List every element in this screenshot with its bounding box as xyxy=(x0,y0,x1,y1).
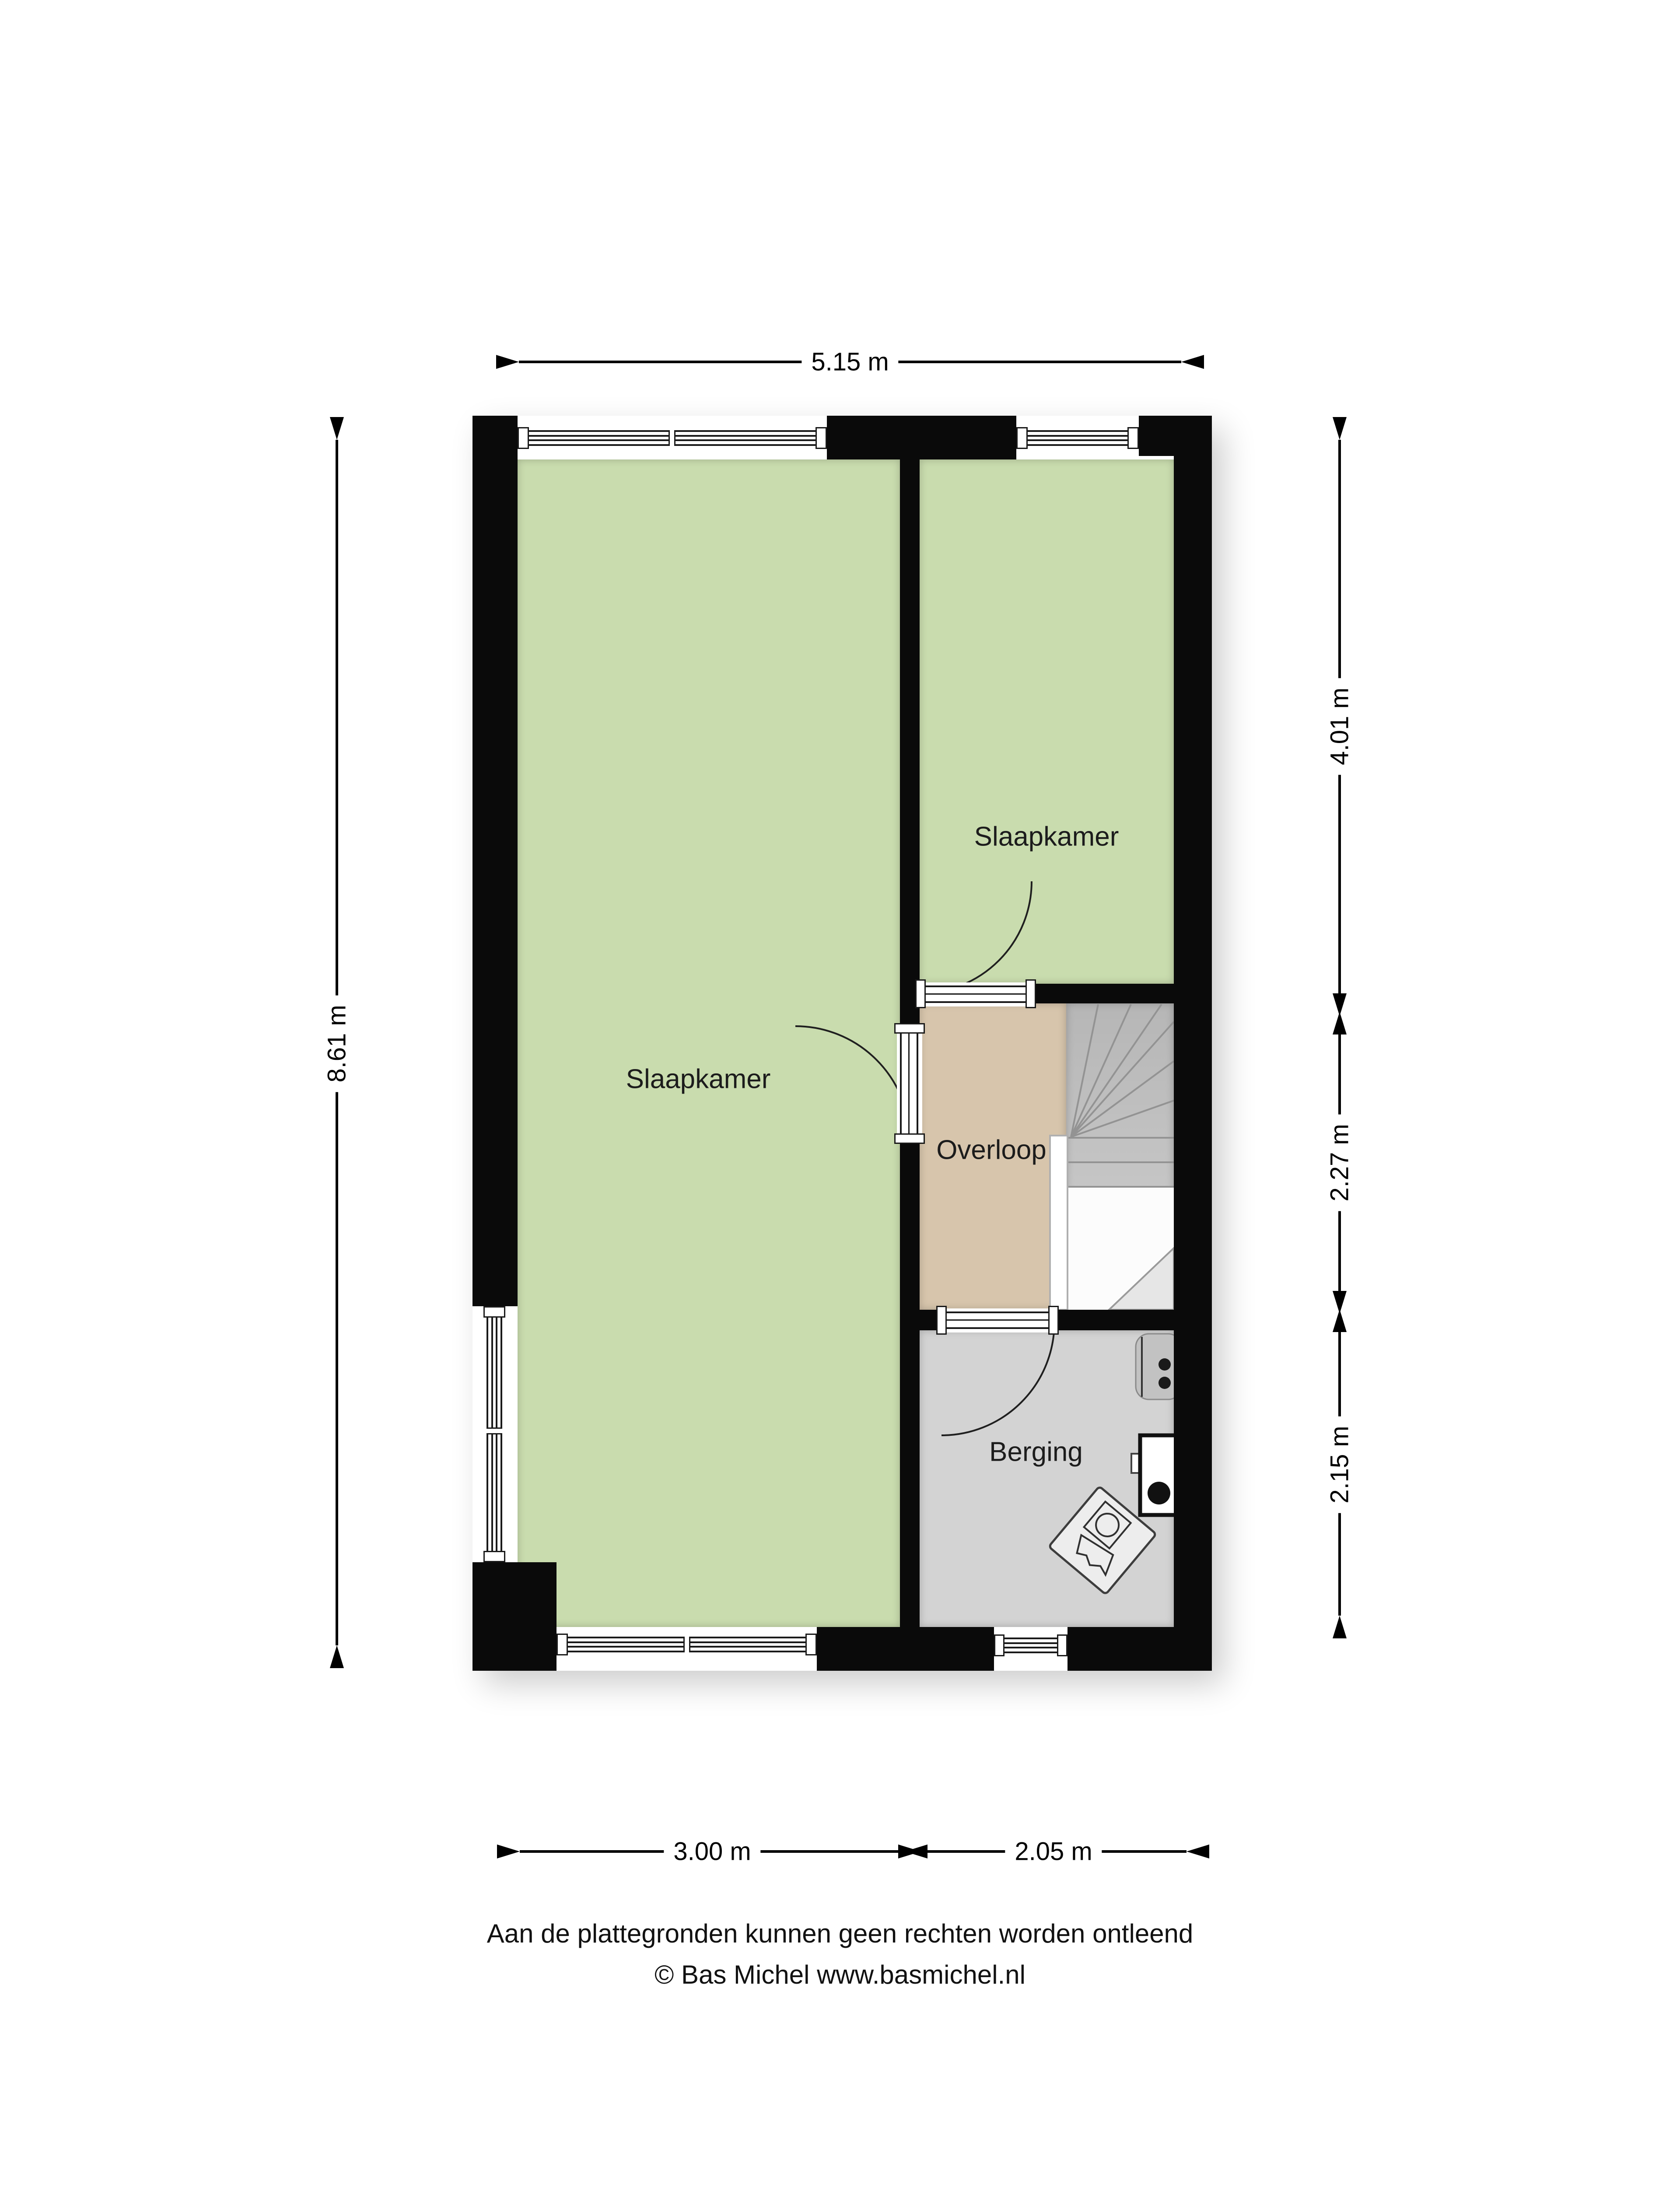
window-frame-cap xyxy=(518,427,529,449)
sink-icon xyxy=(1131,1435,1178,1515)
footer-credit: © Bas Michel www.basmichel.nl xyxy=(0,1954,1680,1995)
wall-segment xyxy=(1054,1310,1174,1330)
dimension-label-right-3: 2.15 m xyxy=(1325,1416,1354,1513)
window-frame-cap xyxy=(805,1634,817,1655)
wall-segment xyxy=(1032,984,1174,1003)
dimension-label-bottom-1: 3.00 m xyxy=(664,1837,760,1866)
wall-segment xyxy=(1067,1627,1212,1671)
wall-segment xyxy=(827,416,1016,459)
window-frame-cap xyxy=(1016,427,1028,449)
wall-segment xyxy=(900,459,920,1026)
door-frame-cap xyxy=(894,1133,925,1144)
window-mullion xyxy=(683,1637,690,1652)
door-panel xyxy=(900,1030,918,1137)
door-panel xyxy=(943,1311,1051,1329)
floor-plan-page: Slaapkamer Slaapkamer Overloop Berging 5… xyxy=(0,0,1680,2188)
door-frame-cap xyxy=(915,979,926,1008)
door-frame-cap xyxy=(1025,979,1036,1008)
door-frame-cap xyxy=(1048,1306,1059,1335)
door-swing-icon xyxy=(941,1322,1054,1435)
dimension-label-bottom-2: 2.05 m xyxy=(1005,1837,1102,1866)
dimension-label-right-2: 2.27 m xyxy=(1325,1114,1354,1211)
wall-segment xyxy=(472,1562,556,1671)
wall-segment xyxy=(900,1142,920,1627)
window-frame-cap xyxy=(483,1551,505,1562)
window-frame-cap xyxy=(483,1306,505,1318)
dimension-label-left: 8.61 m xyxy=(322,995,352,1092)
window-frame-cap xyxy=(1057,1634,1067,1656)
window-frame-cap xyxy=(1127,427,1139,449)
stairs-icon xyxy=(1066,1004,1174,1187)
door-frame-cap xyxy=(936,1306,947,1335)
handrail-icon xyxy=(1050,1136,1067,1310)
window-frame-cap xyxy=(994,1634,1004,1656)
window-frame-cap xyxy=(556,1634,568,1655)
room-label-berging: Berging xyxy=(989,1437,1083,1468)
room-label-slaapkamer-left: Slaapkamer xyxy=(626,1064,771,1095)
window-glazing xyxy=(1016,430,1139,446)
wall-segment xyxy=(472,416,518,1306)
dimension-label-top: 5.15 m xyxy=(801,347,898,377)
door-swing-icon xyxy=(795,1026,910,1141)
wall-segment xyxy=(817,1627,994,1671)
dimension-label-right-1: 4.01 m xyxy=(1325,678,1354,775)
footer-disclaimer: Aan de plattegronden kunnen geen rechten… xyxy=(0,1913,1680,1954)
door-frame-cap xyxy=(894,1023,925,1034)
footer: Aan de plattegronden kunnen geen rechten… xyxy=(0,1913,1680,1995)
window-glazing xyxy=(994,1637,1067,1653)
plan-decoration-layer xyxy=(0,0,1680,2188)
room-label-overloop: Overloop xyxy=(936,1135,1046,1166)
room-label-slaapkamer-right: Slaapkamer xyxy=(974,821,1119,852)
window-frame-cap xyxy=(815,427,827,449)
door-swing-icon xyxy=(920,881,1032,993)
door-panel xyxy=(923,985,1028,1003)
window-mullion xyxy=(668,430,675,446)
window-mullion xyxy=(486,1427,502,1434)
wall-segment xyxy=(1174,416,1212,1671)
